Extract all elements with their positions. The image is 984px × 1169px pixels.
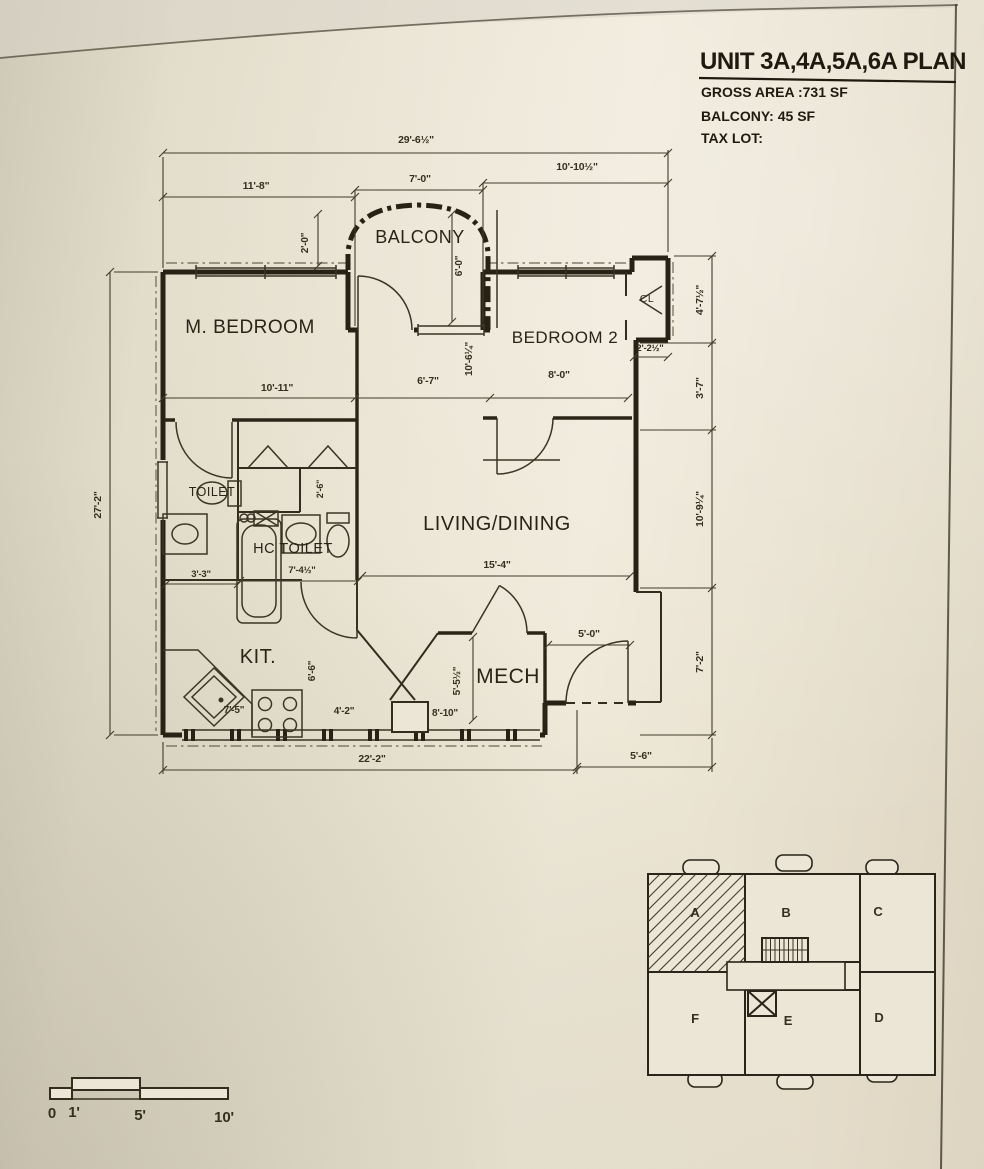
dim-cl-width: 2'-2½" [636, 343, 663, 354]
scale-bar-segment-1 [50, 1088, 72, 1099]
keyplan-unit-f-label: F [691, 1011, 699, 1026]
mech-equipment-box [392, 702, 428, 732]
scale-bar: 0 1' 5' 10' [48, 1078, 234, 1126]
keyplan-balcony-tab-3 [866, 860, 898, 875]
key-plan: A B C D E F [648, 855, 935, 1089]
plan-title: UNIT 3A,4A,5A,6A PLAN [700, 48, 966, 75]
closet-bifold-doors [248, 446, 348, 468]
stove-burner-1 [259, 698, 272, 711]
dim-hc-depth: 2'-6" [315, 480, 325, 498]
title-underline [699, 78, 956, 82]
dim-kit-width: 7'-5" [224, 705, 245, 716]
dim-line-top-row2 [159, 179, 672, 326]
mech-door [472, 586, 527, 634]
dim-line-mid-row [159, 394, 632, 402]
room-label-m-bedroom: M. BEDROOM [185, 317, 315, 338]
balcony-door [358, 276, 412, 330]
bedroom2-door [497, 418, 553, 474]
scale-tick-0: 0 [48, 1105, 56, 1122]
scale-bar-segment-2 [72, 1078, 140, 1090]
hc-toilet-tank-icon [327, 513, 349, 523]
dim-right-1: 4'-7½" [694, 285, 706, 315]
dim-living-width: 15'-4" [483, 559, 511, 571]
dim-hc-width: 7'-4½" [288, 565, 315, 576]
dim-kit-mid: 4'-2" [334, 706, 355, 717]
dim-top-left: 11'-8" [243, 180, 270, 192]
dim-line-left [106, 268, 158, 739]
room-label-cl: CL [640, 293, 654, 305]
vanity-counter [163, 514, 207, 554]
kitchen-mech-angled-walls [357, 580, 438, 700]
dim-kit-height: 6'-6" [307, 660, 318, 681]
keyplan-unit-e-label: E [784, 1013, 793, 1028]
room-label-kitchen: KIT. [240, 646, 276, 668]
dim-right-3: 10'-9¼" [694, 491, 706, 527]
window-bottom-band [182, 730, 540, 740]
dim-entry-width: 5'-0" [578, 628, 600, 640]
dim-mbr-width: 10'-11" [261, 382, 294, 394]
room-label-toilet: TOILET [189, 485, 236, 499]
room-label-living-dining: LIVING/DINING [423, 513, 571, 535]
dim-bottom-right: 5'-6" [630, 750, 652, 762]
stove-burner-2 [284, 698, 297, 711]
dim-mech-height: 5'-5½" [452, 666, 463, 695]
dim-balcony-width: 6'-0" [454, 255, 465, 276]
dim-top-right: 10'-10½" [556, 161, 598, 173]
dim-line-living [358, 572, 634, 580]
dim-hall-width: 6'-7" [417, 375, 439, 387]
kitchen-fixtures [163, 650, 302, 737]
dim-right-2: 3'-7" [694, 377, 706, 399]
dim-right-4: 7'-2" [694, 651, 706, 673]
dim-top-mid: 7'-0" [409, 173, 431, 185]
window-bottom-mullions [186, 729, 515, 741]
photographed-plan-sheet: UNIT 3A,4A,5A,6A PLAN GROSS AREA :731 SF… [0, 0, 984, 1169]
sheet-border-line [941, 4, 956, 1169]
corner-sink-drain [219, 698, 224, 703]
room-label-hc-toilet: HC TOILET [253, 541, 333, 557]
keyplan-unit-d-label: D [874, 1010, 883, 1025]
bathtub-inner [242, 525, 276, 617]
bathtub-outer [237, 519, 281, 623]
keyplan-unit-a-label: A [690, 905, 700, 920]
balcony-area-text: BALCONY: 45 SF [701, 108, 816, 124]
keyplan-balcony-tab-1 [683, 860, 719, 875]
dim-line-bottom [159, 710, 716, 774]
dim-mech-width: 8'-10" [432, 708, 458, 719]
room-label-balcony: BALCONY [375, 227, 465, 247]
scale-tick-1: 1' [68, 1104, 80, 1121]
title-block: UNIT 3A,4A,5A,6A PLAN GROSS AREA :731 SF… [699, 48, 966, 146]
dim-bottom-left: 22'-2" [358, 753, 386, 765]
keyplan-balcony-tab-2 [776, 855, 812, 871]
window-balcony-wall [418, 324, 484, 336]
dim-balcony-depth: 2'-0" [300, 232, 311, 253]
vanity-sink-icon [172, 524, 198, 544]
mbedroom-door [176, 422, 232, 478]
room-label-mech: MECH [476, 665, 540, 688]
kitchen-door [301, 582, 357, 638]
keyplan-balcony-tab-5 [777, 1074, 813, 1089]
dim-toilet-width: 3'-3" [191, 569, 211, 580]
keyplan-corridor [727, 962, 845, 990]
dim-mbr-height: 10'-6¼" [464, 342, 475, 377]
dim-overall-width: 29'-6½" [398, 134, 434, 146]
window-left-band [157, 462, 168, 518]
tax-lot-text: TAX LOT: [701, 130, 763, 146]
scale-tick-10: 10' [214, 1109, 234, 1126]
gross-area-text: GROSS AREA :731 SF [701, 84, 848, 100]
balcony-outline [348, 205, 488, 330]
room-label-bedroom2: BEDROOM 2 [512, 328, 619, 347]
entry-door [566, 641, 628, 703]
floor-plan-drawing: UNIT 3A,4A,5A,6A PLAN GROSS AREA :731 SF… [0, 0, 984, 1169]
scale-bar-segment-3 [140, 1088, 228, 1099]
scale-tick-5: 5' [134, 1107, 146, 1124]
dim-line-entry [544, 641, 634, 649]
keyplan-unit-c-label: C [873, 904, 883, 919]
entry-corridor-walls [636, 592, 661, 702]
keyplan-unit-b-label: B [781, 905, 790, 920]
dim-br2-width: 8'-0" [548, 369, 570, 381]
dim-left-height: 27'-2" [92, 491, 104, 519]
